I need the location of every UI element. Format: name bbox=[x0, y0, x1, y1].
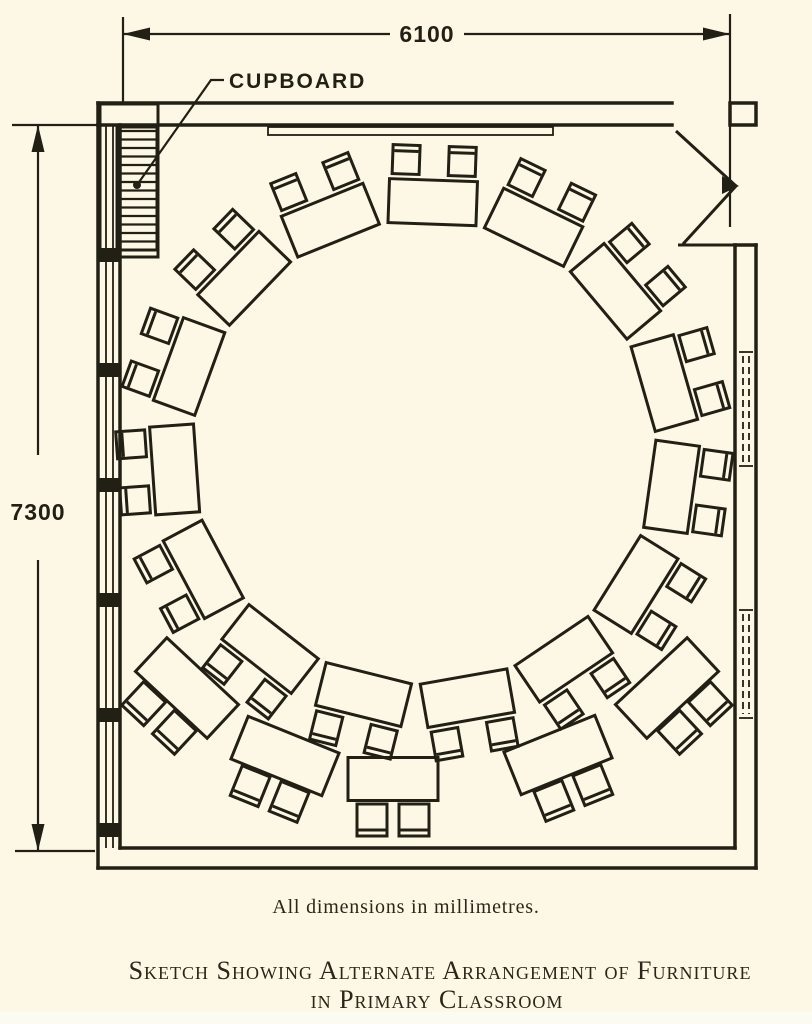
classroom-floor-plan: CUPBOARD 6100 7300 All dimensions in mil… bbox=[0, 0, 812, 1024]
chair-backrest bbox=[394, 151, 418, 152]
figure-title-line2: in Primary Classroom bbox=[311, 985, 564, 1014]
window-pier bbox=[98, 248, 120, 262]
chair-backrest bbox=[451, 153, 475, 154]
scanned-plan-page: CUPBOARD 6100 7300 All dimensions in mil… bbox=[0, 0, 812, 1024]
window-pier bbox=[98, 708, 120, 722]
window-pier bbox=[98, 823, 120, 837]
window-pier bbox=[98, 363, 120, 377]
cupboard-label: CUPBOARD bbox=[229, 70, 366, 93]
window-pier bbox=[98, 478, 120, 492]
figure-title-line1: Sketch Showing Alternate Arrangement of … bbox=[129, 956, 752, 985]
units-caption: All dimensions in millimetres. bbox=[272, 896, 539, 918]
left-dim-value: 7300 bbox=[10, 499, 65, 525]
chair-backrest bbox=[122, 433, 124, 457]
chair-backrest bbox=[126, 489, 128, 513]
top-dim-value: 6100 bbox=[399, 21, 454, 47]
window-pier bbox=[98, 593, 120, 607]
